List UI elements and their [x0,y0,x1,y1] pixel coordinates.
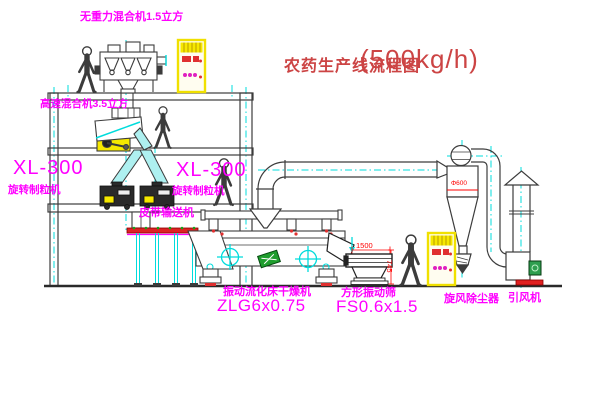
label-dryer-model: ZLG6x0.75 [217,297,306,314]
label-belt-conveyor: 皮带输送机 [139,208,194,219]
control-cabinet-top [178,40,205,92]
fan-duct-stack [471,149,543,285]
label-granulator-center-name: 旋转制粒机 [172,186,225,197]
rotary-granulators [100,182,174,210]
person-floor2 [154,107,171,148]
label-granulator-left-model: XL-300 [13,158,84,178]
label-fan: 引风机 [508,293,541,304]
dimension-sieve-length: 1500 [356,242,373,250]
diagram-capacity: (500kg/h) [360,44,479,75]
label-gravity-mixer: 无重力混合机1.5立方 [80,12,183,23]
label-granulator-center-model: XL-300 [176,160,247,180]
belt-conveyor [127,212,198,286]
dimension-sieve-height: 745 [386,260,394,273]
person-roof [77,47,95,92]
label-cyclone: 旋风除尘器 [444,294,499,305]
label-granulator-left-name: 旋转制粒机 [8,185,61,196]
control-cabinet-bottom [428,233,455,285]
label-sieve-model: FS0.6x1.5 [336,298,418,315]
gravity-mixer [95,42,166,93]
dimension-cyclone-diameter: Φ600 [451,181,467,188]
person-ground [400,235,420,285]
label-high-speed-mixer: 高速混合机3.5立方 [40,99,128,110]
process-flow-diagram: 农药生产线流程图 (500kg/h) 无重力混合机1.5立方 高速混合机3.5立… [0,0,600,403]
